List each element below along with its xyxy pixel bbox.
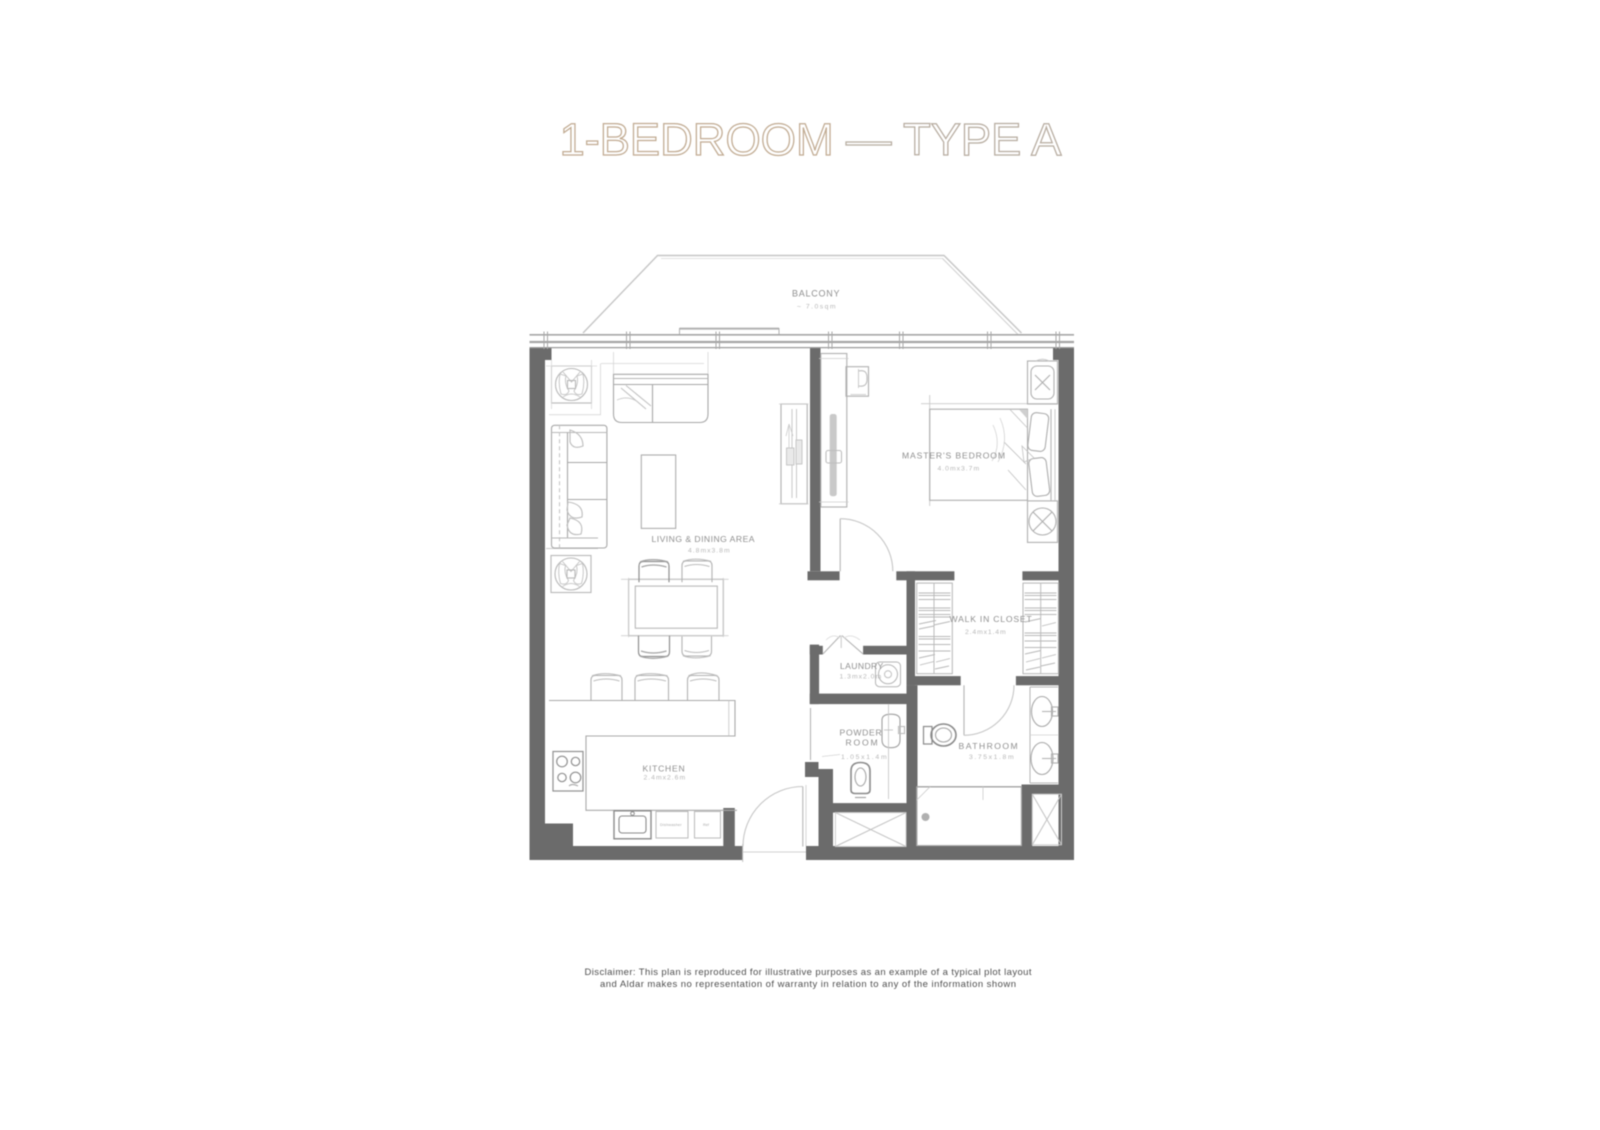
svg-text:~ 7.0sqm: ~ 7.0sqm xyxy=(797,304,836,311)
svg-text:1.05x1.4m: 1.05x1.4m xyxy=(841,754,887,761)
svg-text:WALK IN CLOSET: WALK IN CLOSET xyxy=(950,614,1033,624)
svg-text:KITCHEN: KITCHEN xyxy=(643,764,686,774)
svg-text:Disclaimer: This plan is repro: Disclaimer: This plan is reproduced for … xyxy=(585,967,1032,978)
svg-text:MASTER'S BEDROOM: MASTER'S BEDROOM xyxy=(902,451,1006,461)
svg-text:BALCONY: BALCONY xyxy=(792,289,841,299)
svg-text:Dishwasher: Dishwasher xyxy=(660,823,682,827)
svg-text:4.0mx3.7m: 4.0mx3.7m xyxy=(938,466,980,473)
svg-text:2.4mx1.4m: 2.4mx1.4m xyxy=(965,629,1006,636)
svg-text:LIVING & DINING AREA: LIVING & DINING AREA xyxy=(652,534,756,544)
svg-text:POWDER: POWDER xyxy=(840,728,883,738)
svg-text:BATHROOM: BATHROOM xyxy=(959,741,1019,751)
svg-text:2.4mx2.6m: 2.4mx2.6m xyxy=(644,775,686,782)
svg-text:3.75x1.8m: 3.75x1.8m xyxy=(969,754,1014,761)
svg-text:1.3mx2.0m: 1.3mx2.0m xyxy=(840,674,882,681)
svg-text:1-BEDROOM — TYPE A: 1-BEDROOM — TYPE A xyxy=(560,114,1063,165)
svg-text:and Aldar makes no representat: and Aldar makes no representation of war… xyxy=(600,979,1016,990)
svg-text:4.8mx3.8m: 4.8mx3.8m xyxy=(688,548,730,555)
svg-text:ROOM: ROOM xyxy=(846,738,879,748)
svg-text:Ref: Ref xyxy=(703,823,710,827)
svg-text:LAUNDRY: LAUNDRY xyxy=(840,661,884,671)
